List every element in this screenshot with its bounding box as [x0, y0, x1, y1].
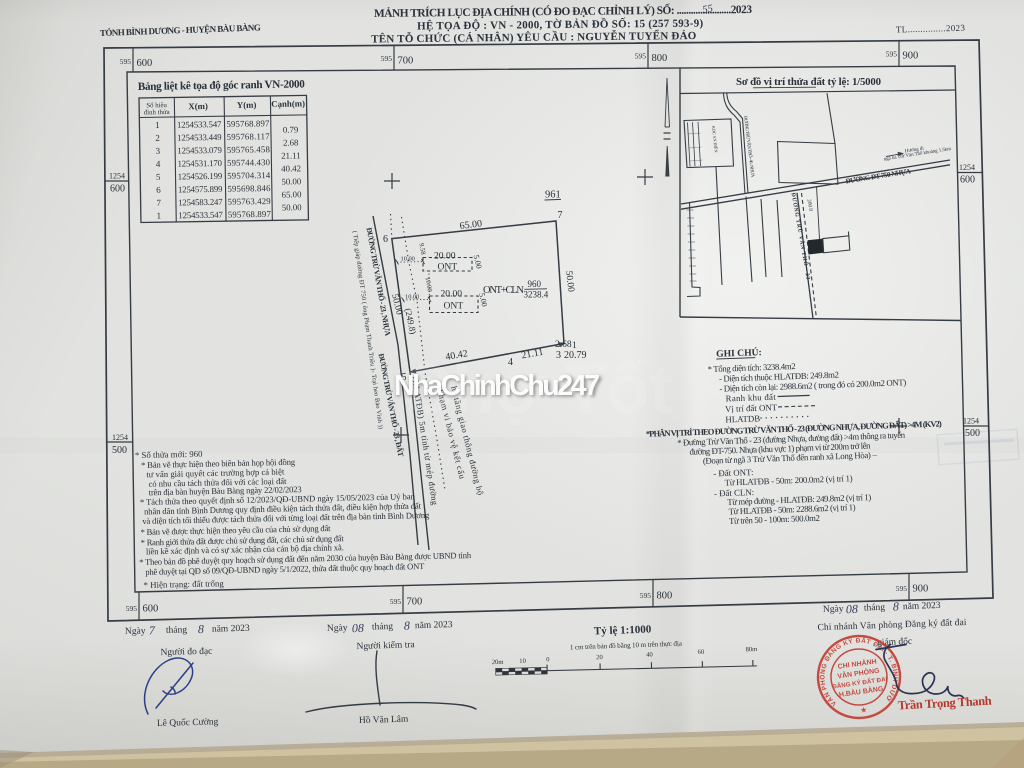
svg-text:ONT: ONT: [444, 301, 464, 312]
svg-text:TL...............2023: TL...............2023: [896, 23, 966, 35]
svg-text:1254: 1254: [112, 433, 128, 442]
svg-text:40.42: 40.42: [281, 163, 301, 173]
svg-text:50.00: 50.00: [281, 176, 302, 186]
svg-text:Lê Quốc Cường: Lê Quốc Cường: [157, 716, 219, 729]
svg-text:Cạnh(m): Cạnh(m): [271, 98, 305, 109]
svg-text:1254: 1254: [109, 172, 125, 181]
svg-text:Ngày: Ngày: [327, 623, 348, 634]
svg-text:700: 700: [398, 56, 414, 67]
svg-text:600: 600: [960, 175, 975, 186]
svg-text:6: 6: [156, 185, 161, 195]
svg-text:9.58: 9.58: [418, 243, 427, 256]
svg-text:595: 595: [640, 591, 652, 600]
svg-text:HLATDB: HLATDB: [725, 413, 760, 424]
svg-text:1254533.449: 1254533.449: [177, 132, 222, 143]
svg-text:1254: 1254: [963, 417, 979, 426]
svg-text:600: 600: [137, 58, 153, 69]
svg-text:595768.117: 595768.117: [227, 131, 271, 142]
svg-text:7: 7: [558, 210, 563, 221]
svg-text:8: 8: [404, 618, 410, 632]
svg-text:0.79: 0.79: [283, 124, 299, 134]
svg-text:1254533.547: 1254533.547: [178, 210, 223, 221]
svg-text:21.11: 21.11: [281, 150, 301, 160]
svg-text:595: 595: [381, 54, 393, 63]
svg-text:595: 595: [120, 57, 132, 66]
svg-text:595: 595: [886, 50, 898, 59]
svg-text:595768.897: 595768.897: [226, 118, 270, 129]
svg-text:10.00: 10.00: [405, 293, 419, 300]
svg-text:1254533.079: 1254533.079: [177, 145, 222, 156]
svg-text:1254533.547: 1254533.547: [177, 119, 222, 130]
svg-text:(249.8): (249.8): [403, 307, 418, 335]
svg-text:7: 7: [156, 198, 161, 208]
svg-text:KDC AN ĐIỀN: KDC AN ĐIỀN: [711, 126, 719, 153]
svg-text:1254575.899: 1254575.899: [178, 184, 223, 195]
svg-text:595698.846: 595698.846: [227, 183, 271, 194]
svg-text:Chi nhánh Văn phòng Đăng ký đấ: Chi nhánh Văn phòng Đăng ký đất đai: [817, 617, 967, 633]
svg-text:NhaChinhChu247: NhaChinhChu247: [394, 370, 600, 402]
svg-text:20.00: 20.00: [434, 251, 456, 262]
svg-text:tháng: tháng: [372, 622, 394, 633]
svg-text:năm 2023: năm 2023: [903, 601, 941, 612]
svg-text:500: 500: [112, 445, 127, 456]
svg-text:★: ★: [859, 705, 867, 715]
svg-text:08: 08: [846, 602, 858, 616]
svg-text:ĐƯỜNG ĐT-750 NHỰA: ĐƯỜNG ĐT-750 NHỰA: [845, 167, 911, 185]
svg-text:5: 5: [156, 172, 161, 182]
svg-text:2.68: 2.68: [283, 137, 299, 147]
svg-text:Y(m): Y(m): [237, 100, 257, 110]
svg-text:tháng: tháng: [166, 625, 188, 636]
svg-text:50.00: 50.00: [563, 270, 576, 293]
svg-text:60: 60: [698, 649, 705, 656]
svg-text:700: 700: [407, 597, 423, 608]
svg-text:* Hiện trạng: đất trống: * Hiện trạng: đất trống: [144, 578, 225, 590]
svg-text:900: 900: [903, 51, 919, 62]
svg-text:595744.430: 595744.430: [227, 157, 271, 168]
svg-text:TỎNH BÌNH DƯƠNG - HUYỆN BÀU BÀ: TỎNH BÌNH DƯƠNG - HUYỆN BÀU BÀNG: [100, 22, 261, 38]
svg-text:595763.429: 595763.429: [228, 196, 272, 207]
svg-text:595768.897: 595768.897: [228, 209, 272, 220]
svg-text:20: 20: [596, 654, 603, 661]
svg-text:595: 595: [390, 597, 402, 606]
svg-text:Người kiểm tra: Người kiểm tra: [356, 639, 415, 652]
svg-text:1 cm trên bản đồ bằng 10 m trê: 1 cm trên bản đồ bằng 10 m trên thực địa: [570, 640, 683, 652]
svg-text:Người đo đạc: Người đo đạc: [160, 647, 212, 658]
svg-text:800: 800: [652, 53, 668, 64]
svg-text:10.00: 10.00: [424, 277, 434, 294]
svg-text:2.68: 2.68: [555, 340, 572, 350]
svg-text:X(m): X(m): [188, 101, 208, 111]
svg-text:2: 2: [155, 133, 160, 143]
svg-text:500: 500: [965, 428, 980, 439]
svg-text:năm 2023: năm 2023: [415, 620, 453, 631]
svg-text:200.0: 200.0: [806, 199, 814, 212]
svg-text:năm 2023: năm 2023: [212, 624, 250, 635]
svg-text:6: 6: [383, 234, 388, 245]
svg-text:ONT+CLN: ONT+CLN: [483, 285, 524, 296]
svg-text:Bảng liệt kê tọa độ góc ranh V: Bảng liệt kê tọa độ góc ranh VN-2000: [138, 78, 306, 93]
svg-text:Tỷ lệ 1:1000: Tỷ lệ 1:1000: [594, 623, 652, 637]
svg-text:Ngày: Ngày: [125, 626, 146, 637]
svg-text:55: 55: [702, 3, 714, 16]
svg-text:Trần Trọng Thanh: Trần Trọng Thanh: [897, 694, 992, 713]
svg-text:595765.458: 595765.458: [227, 144, 271, 155]
svg-text:Từ trên 50 - 100m: 500.0m2: Từ trên 50 - 100m: 500.0m2: [729, 513, 820, 526]
svg-text:1254531.170: 1254531.170: [177, 158, 222, 169]
svg-text:Vị trí đất ONT: Vị trí đất ONT: [725, 402, 778, 414]
svg-text:8: 8: [893, 599, 899, 613]
svg-text:1254: 1254: [959, 163, 975, 172]
svg-text:7: 7: [149, 623, 156, 637]
svg-text:50.00: 50.00: [282, 202, 303, 212]
svg-text:1254526.199: 1254526.199: [178, 171, 223, 182]
svg-text:5.00: 5.00: [472, 254, 484, 270]
svg-text:961: 961: [545, 190, 561, 201]
svg-text:Sơ đồ vị trí thửa đất tỷ lệ: 1: Sơ đồ vị trí thửa đất tỷ lệ: 1/5000: [736, 76, 881, 88]
svg-text:80m: 80m: [745, 646, 758, 653]
svg-text:10: 10: [519, 658, 526, 665]
svg-text:595: 595: [896, 584, 908, 593]
svg-text:800: 800: [657, 591, 673, 602]
svg-text:20.00: 20.00: [441, 289, 463, 300]
svg-text:595704.314: 595704.314: [227, 170, 271, 181]
svg-text:3238.4: 3238.4: [524, 290, 549, 300]
svg-text:40: 40: [646, 651, 653, 658]
svg-text:595: 595: [635, 52, 647, 61]
svg-text:8: 8: [198, 622, 204, 636]
svg-text:08: 08: [352, 621, 364, 635]
svg-text:tháng: tháng: [864, 603, 886, 614]
svg-text:4: 4: [156, 159, 161, 169]
svg-text:900: 900: [913, 584, 929, 595]
svg-text:1: 1: [155, 120, 160, 130]
svg-text:65.00: 65.00: [282, 189, 303, 199]
svg-text:ONT: ONT: [438, 262, 458, 273]
svg-text:Hồ Văn Lâm: Hồ Văn Lâm: [359, 714, 409, 726]
svg-text:600: 600: [110, 184, 125, 195]
svg-text:960: 960: [528, 279, 542, 289]
svg-text:1254583.247: 1254583.247: [178, 197, 223, 208]
svg-text:đỉnh thửa: đỉnh thửa: [144, 109, 170, 116]
svg-text:0: 0: [546, 656, 550, 663]
svg-text:600: 600: [143, 604, 159, 615]
svg-text:1: 1: [157, 211, 162, 221]
svg-text:595: 595: [126, 604, 138, 613]
svg-text:3: 3: [156, 146, 161, 156]
svg-text:Ngày: Ngày: [823, 604, 844, 615]
svg-text:10.00: 10.00: [401, 256, 415, 263]
svg-text:20m: 20m: [492, 659, 505, 666]
